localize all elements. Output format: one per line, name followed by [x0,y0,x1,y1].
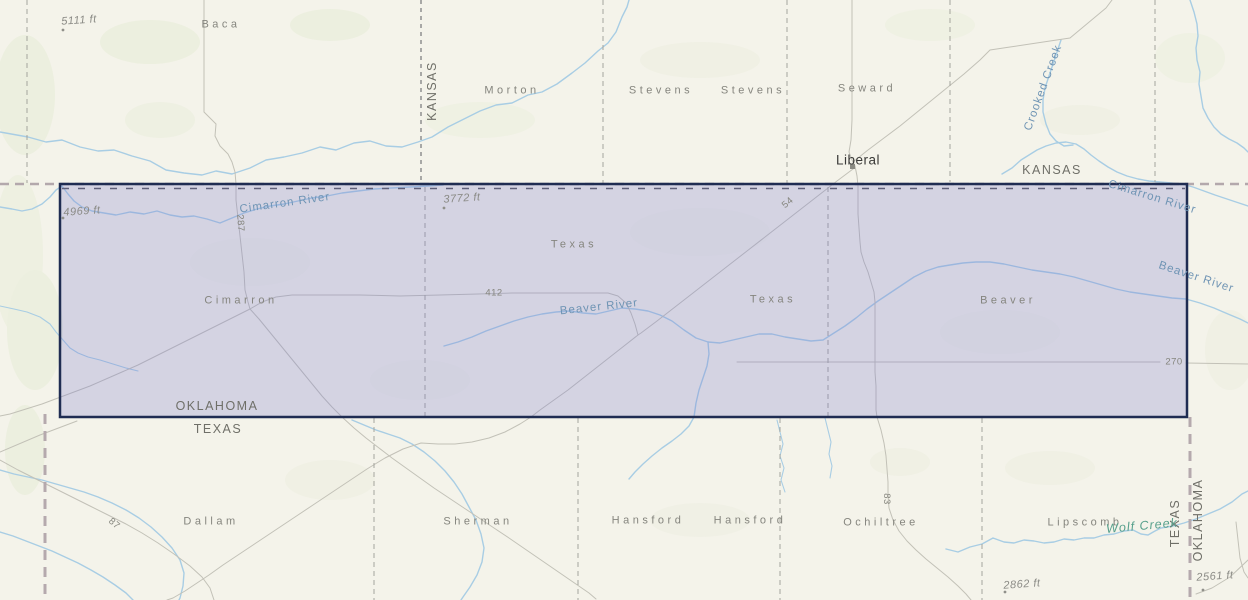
creek-hansford-2 [777,420,785,492]
road-liberal-north [849,0,855,169]
town-marker-liberal [850,164,855,169]
elevation-marker [62,217,65,220]
river-wolf-creek [946,491,1248,552]
elevation-marker [1004,591,1007,594]
map-viewport[interactable]: BacaMortonStevensStevensSewardCimarronTe… [0,0,1248,600]
selected-region-overlay[interactable] [60,184,1187,417]
elevation-marker [1202,589,1205,592]
creek-sherman [352,420,484,600]
creek-dallam-south [0,532,133,600]
elevation-marker [443,207,446,210]
basemap-canvas [0,0,1248,600]
elevation-marker [62,29,65,32]
creek-hansford-1 [825,418,832,478]
